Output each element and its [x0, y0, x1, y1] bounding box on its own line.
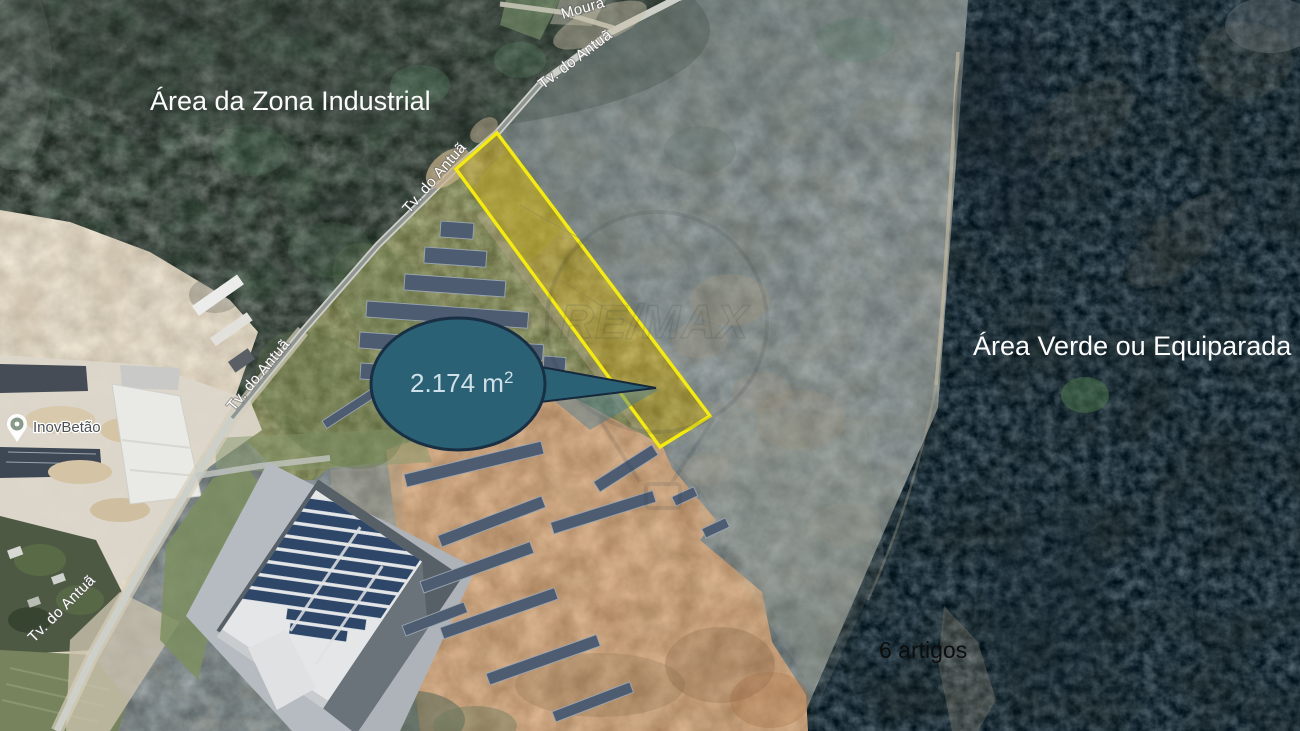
svg-text:InovBetão: InovBetão [33, 419, 101, 436]
svg-text:6 artigos: 6 artigos [879, 637, 967, 663]
svg-text:RE/MAX: RE/MAX [560, 295, 750, 348]
svg-text:2.174 m2: 2.174 m2 [410, 368, 513, 398]
svg-text:Área Verde ou Equiparada: Área Verde ou Equiparada [973, 331, 1292, 361]
svg-text:Área da Zona Industrial: Área da Zona Industrial [150, 86, 431, 116]
